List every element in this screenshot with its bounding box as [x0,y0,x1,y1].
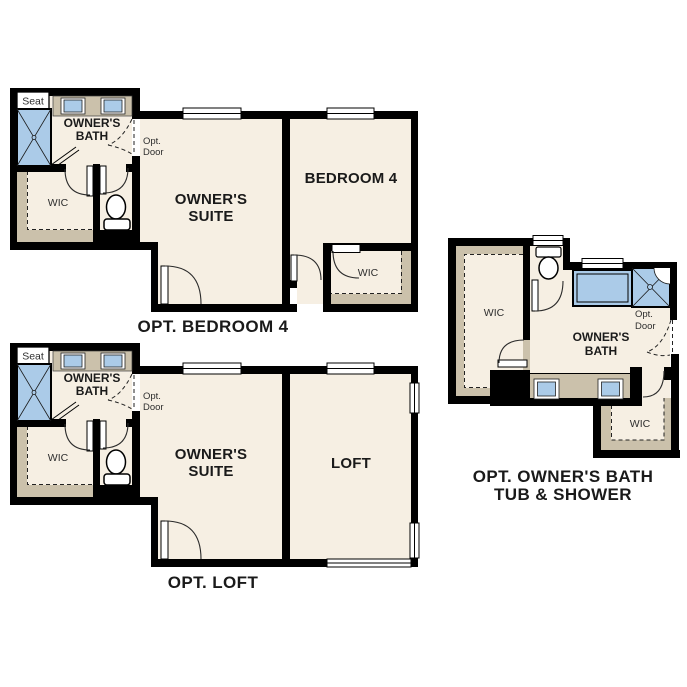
floor-plan-diagram: Seat OWNER'S BATH Opt. Door WIC OWNER'S … [0,0,687,687]
plan-caption: OPT. LOFT [168,573,259,592]
opt-door-label: Door [143,147,164,158]
wall [411,111,418,251]
owners-bath-label: BATH [585,344,617,358]
loft-assembly: LOFT [282,363,419,567]
loft-label: LOFT [331,455,371,472]
wall [593,450,680,458]
plan-opt-bedroom-4: Seat OWNER'S BATH Opt. Door WIC OWNER'S … [10,88,418,336]
wic-floor [464,254,523,388]
closet-shelf [17,485,93,497]
wall [448,238,456,404]
window [183,108,241,119]
wic-label: WIC [358,267,379,279]
shower-icon [632,268,670,307]
plan-opt-owners-bath: WIC OWNER'S BATH Opt. Door WIC OPT. OWNE… [448,236,680,505]
wic-label: WIC [630,418,651,430]
wall [93,419,100,491]
window [183,363,241,374]
sink-icon [101,98,125,114]
closet-shelf [401,251,411,304]
wall [282,304,297,312]
wic-label: WIC [48,197,69,209]
closet-shelf [17,230,93,242]
seat-label: Seat [22,96,44,108]
sink-icon [61,353,85,369]
vanity-counter [530,373,630,399]
owners-bath-label: OWNER'S [573,330,630,344]
wic-label: WIC [484,307,505,319]
vanity-counter [53,96,132,116]
owners-suite-label: OWNER'S [175,191,247,208]
window [327,363,374,374]
wall [151,559,297,567]
wall [670,262,677,320]
plan-caption: TUB & SHOWER [494,485,632,504]
sink-icon [534,379,559,399]
plan-caption: OPT. OWNER'S BATH [473,467,654,486]
opt-door-label: Opt. [143,391,161,402]
opt-door-label: Door [143,402,164,413]
wall [411,243,418,312]
opt-door-label: Door [635,321,656,332]
owners-bath-label: OWNER'S [64,371,121,385]
wall [523,238,530,340]
owners-bath-suite-assembly: Seat OWNER'S BATH Opt. Door WIC OWNER'S … [10,88,297,312]
wall [323,304,418,312]
plan-opt-loft: Seat OWNER'S BATH Opt. Door WIC OWNER'S … [10,343,419,592]
owners-bath-label: BATH [76,384,108,398]
wall [282,111,290,312]
wall [593,398,601,458]
wall [323,243,331,312]
hall-floor [297,280,323,304]
floor-plan-page: Seat OWNER'S BATH Opt. Door WIC OWNER'S … [0,0,687,687]
wall [93,164,100,236]
bedroom-label: BEDROOM 4 [305,170,398,187]
seat-label: Seat [22,351,44,363]
window [327,108,374,119]
vanity-counter [53,351,132,371]
sink-icon [598,379,623,399]
owners-bath-label: BATH [76,129,108,143]
wall [93,485,140,505]
wall [630,367,642,406]
closet-shelf [331,294,401,304]
owners-suite-label: OWNER'S [175,446,247,463]
wall [151,497,158,567]
wall [93,230,140,250]
wall [664,367,679,380]
wall [126,419,132,427]
window [410,383,419,413]
window [582,259,623,269]
wic-label: WIC [48,452,69,464]
owners-suite-label: SUITE [188,208,233,225]
window [533,236,563,246]
plan-caption: OPT. BEDROOM 4 [137,317,288,336]
wall [151,242,158,312]
sink-icon [101,353,125,369]
window [410,523,419,558]
owners-bath-suite-assembly: Seat OWNER'S BATH Opt. Door WIC OWNER'S … [10,343,297,567]
window [327,559,411,567]
opt-door-label: Opt. [143,136,161,147]
bathtub-icon [573,270,632,306]
wall [151,304,297,312]
sink-icon [61,98,85,114]
opt-door-label: Opt. [635,309,653,320]
wall [282,366,290,567]
owners-bath-label: OWNER'S [64,116,121,130]
owners-suite-label: SUITE [188,463,233,480]
wall [126,164,132,172]
bedroom-4-assembly: BEDROOM 4 WIC [282,108,418,312]
